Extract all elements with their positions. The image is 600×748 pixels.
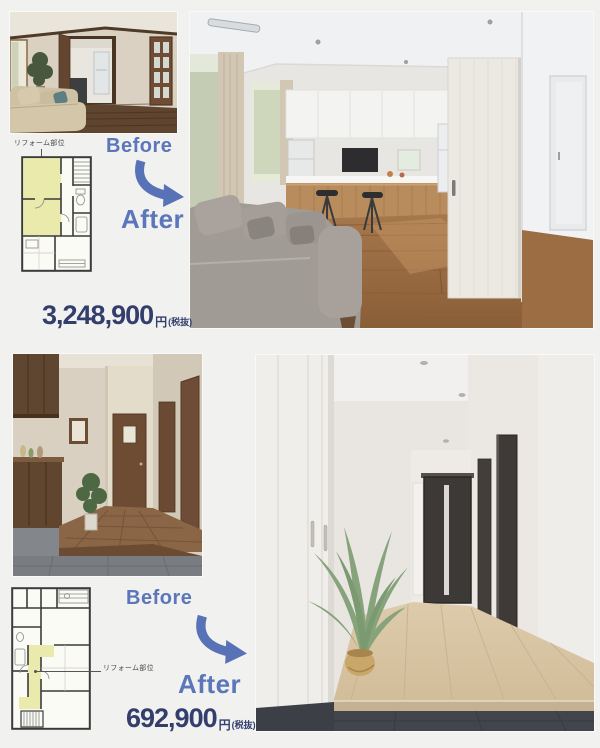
before-label: Before (106, 136, 172, 156)
plan-leader-line (36, 671, 101, 672)
reform-brochure-page: リフォーム部位 Before (0, 0, 600, 748)
after-label: After (121, 206, 184, 232)
before-label: Before (126, 588, 192, 608)
before-photo-hallway (13, 354, 202, 576)
price-unit: 円 (153, 316, 168, 329)
price-unit: 円 (217, 719, 232, 732)
after-label: After (178, 671, 241, 697)
price-tax-note: (税抜) (168, 318, 192, 329)
floor-plan-hallway (11, 587, 91, 730)
price-amount: 692,900 (126, 705, 217, 732)
plan-label: リフォーム部位 (14, 140, 65, 147)
floor-plan-living (21, 156, 92, 272)
price-amount: 3,248,900 (42, 302, 153, 329)
price: 3,248,900 円 (税抜) (42, 302, 192, 329)
price: 692,900 円 (税抜) (126, 705, 256, 732)
after-photo-hallway (256, 355, 594, 731)
plan-label: リフォーム部位 (103, 665, 154, 672)
before-photo-living (10, 12, 177, 133)
price-tax-note: (税抜) (232, 721, 256, 732)
after-photo-living (190, 12, 593, 328)
curved-arrow-icon (131, 158, 185, 208)
curved-arrow-icon (192, 613, 248, 665)
